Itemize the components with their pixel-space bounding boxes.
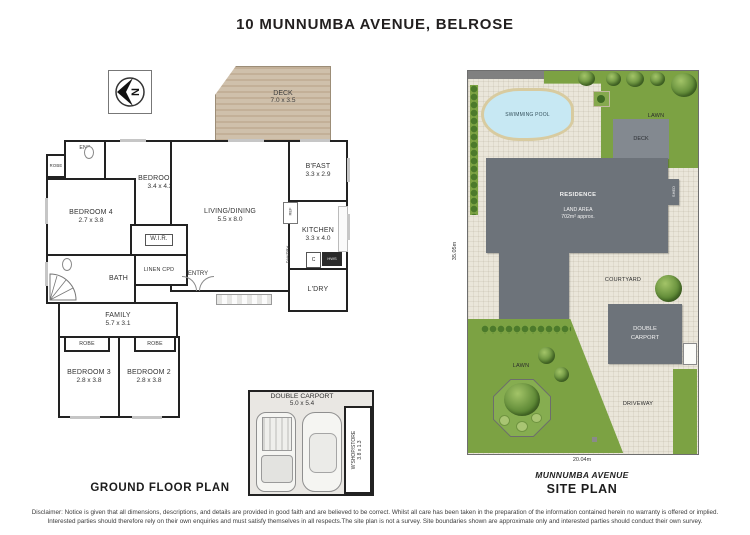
ute-cab: [261, 455, 293, 483]
window: [45, 198, 48, 224]
site-plan-caption: SITE PLAN: [497, 482, 667, 496]
pool-label: SWIMMING POOL: [505, 112, 550, 118]
tree-icon: [538, 347, 555, 364]
room-family: FAMILY 5.7 x 3.1: [58, 302, 178, 338]
planter-box: [593, 91, 610, 107]
shed-label: SHED: [671, 164, 676, 219]
bush-icon: [499, 415, 510, 426]
tree-icon: [578, 71, 595, 86]
floor-plan: N DECK 7.0 x 3.5 ENS ROBE BEDROOM 1 3.4 …: [0, 0, 420, 535]
deck-area: [215, 66, 331, 142]
window: [347, 158, 350, 182]
depth-dimension: 35.05m: [452, 211, 458, 291]
window: [70, 416, 100, 419]
floor-plan-caption: GROUND FLOOR PLAN: [50, 482, 270, 494]
carport-label: DOUBLE CARPORT 5.0 x 5.4: [252, 393, 352, 407]
sedan-roof: [309, 433, 337, 473]
room-robe3: ROBE: [64, 336, 110, 352]
room-bfast: B'FAST 3.3 x 2.9: [288, 140, 348, 202]
compass-n: N: [130, 88, 142, 96]
verge-strip-right: [673, 369, 697, 454]
window: [45, 262, 48, 286]
tree-icon: [671, 73, 697, 97]
room-linen: LINEN CPD: [130, 254, 188, 286]
gate: [683, 343, 697, 365]
window: [120, 139, 146, 142]
workshop-store-label: W'SHOP/STORE 3.8 x 1.3: [351, 410, 365, 490]
site-deck-label: DECK: [633, 136, 648, 142]
toilet-icon: [62, 258, 72, 271]
courtyard-label: COURTYARD: [596, 277, 650, 283]
car-ute-icon: [256, 412, 296, 492]
lawn-bottom-label: LAWN: [501, 363, 541, 369]
disclaimer-line1: Disclaimer: Notice is given that all dim…: [5, 509, 745, 518]
ens-toilet-icon: [84, 146, 94, 159]
residence-labels: RESIDENCE LAND AREA 702m² approx.: [508, 191, 648, 222]
tree-icon: [655, 275, 682, 302]
tree-icon: [554, 367, 569, 382]
stairs-fan: [48, 272, 88, 302]
window: [347, 214, 350, 240]
bush-icon: [531, 413, 542, 423]
site-plan: LAWN SWIMMING POOL DECK RESIDENCE LAND A…: [467, 70, 699, 455]
tree-icon: [504, 383, 540, 416]
width-dimension: 20.04m: [552, 457, 612, 463]
window: [228, 139, 264, 142]
pantry-label: PANTRY: [286, 233, 291, 277]
room-ldry: L'DRY: [288, 268, 348, 312]
cupboard-box: C: [306, 252, 321, 268]
swimming-pool: SWIMMING POOL: [481, 88, 574, 141]
bush-icon: [516, 421, 528, 432]
garden-strip-left: [470, 85, 478, 215]
room-wir: W.I.R.: [130, 224, 188, 256]
porch-steps: [216, 294, 272, 305]
room-bedroom4: BEDROOM 4 2.7 x 3.8: [46, 178, 136, 256]
site-carport: DOUBLE CARPORT: [608, 304, 682, 364]
street-caption: MUNNUMBA AVENUE: [497, 470, 667, 480]
fridge-label: REF: [287, 192, 292, 232]
site-deck: DECK: [613, 119, 669, 159]
window: [132, 416, 162, 419]
driveway-label: DRIVEWAY: [610, 401, 666, 407]
tree-icon: [626, 71, 644, 87]
room-robe2: ROBE: [134, 336, 176, 352]
hedge-row-bottom: [481, 325, 571, 334]
residence-wing: [499, 253, 569, 319]
deck-label: DECK 7.0 x 3.5: [243, 90, 323, 104]
fence-strip: [468, 71, 546, 79]
room-robe4: ROBE: [46, 154, 66, 178]
ute-tray: [262, 417, 292, 451]
driveway-marker: [592, 437, 597, 442]
car-sedan-icon: [302, 412, 342, 492]
hws-box: HWS: [322, 252, 342, 266]
disclaimer: Disclaimer: Notice is given that all dim…: [5, 509, 745, 527]
room-living-dining: LIVING/DINING 5.5 x 8.0: [170, 140, 290, 292]
site-carport-label: DOUBLE CARPORT: [625, 325, 665, 342]
lawn-bottom: [468, 319, 628, 453]
disclaimer-line2: Interested parties should therefore rely…: [5, 518, 745, 527]
tree-icon: [606, 72, 621, 86]
tree-icon: [650, 72, 665, 86]
plant-icon: [597, 95, 605, 103]
window: [300, 139, 330, 142]
compass-icon: N: [108, 70, 152, 114]
